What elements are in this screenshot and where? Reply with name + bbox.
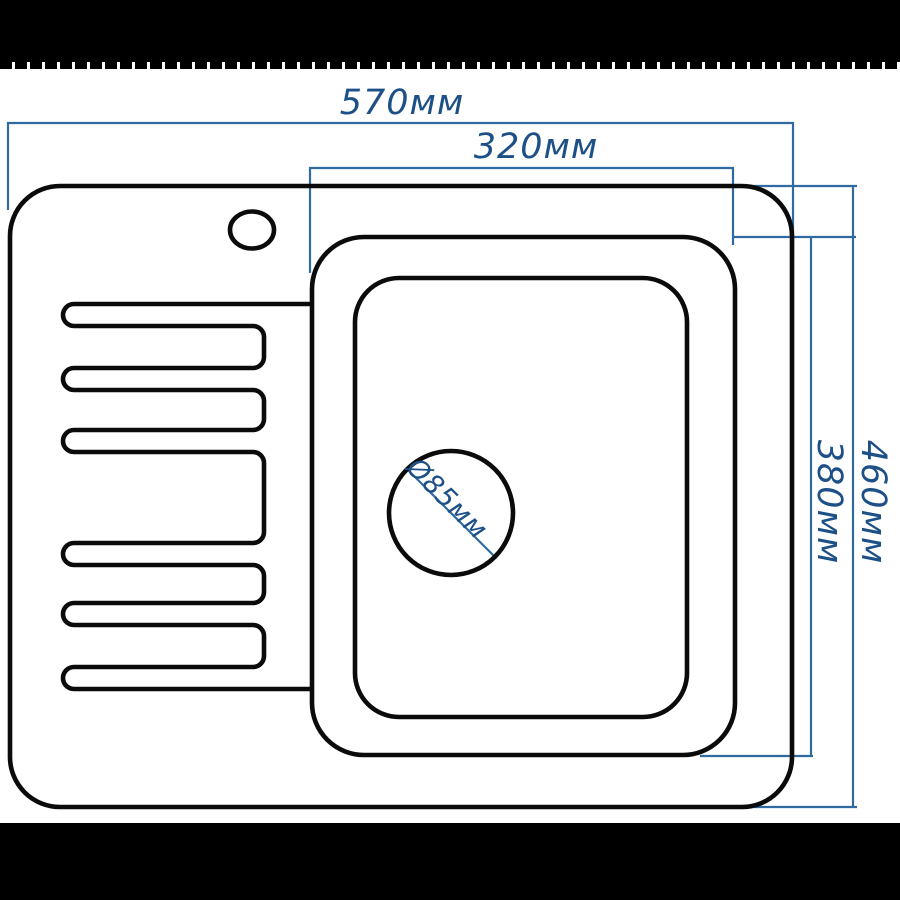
faucet-hole-outline bbox=[230, 212, 274, 249]
dimension-570-line bbox=[8, 123, 793, 260]
bowl-outer-outline bbox=[312, 237, 735, 755]
sink-line-drawing bbox=[0, 0, 900, 900]
bowl-inner-outline bbox=[355, 278, 687, 717]
drainboard-groove-path bbox=[63, 304, 312, 689]
bowl-width-label: 320мм bbox=[474, 127, 599, 167]
bowl-depth-label: 380мм bbox=[809, 440, 849, 565]
overall-depth-label: 460мм bbox=[853, 440, 893, 565]
overall-width-label: 570мм bbox=[340, 83, 465, 123]
sink-technical-drawing: 570мм 320мм 380мм 460мм Ø85мм bbox=[0, 0, 900, 900]
